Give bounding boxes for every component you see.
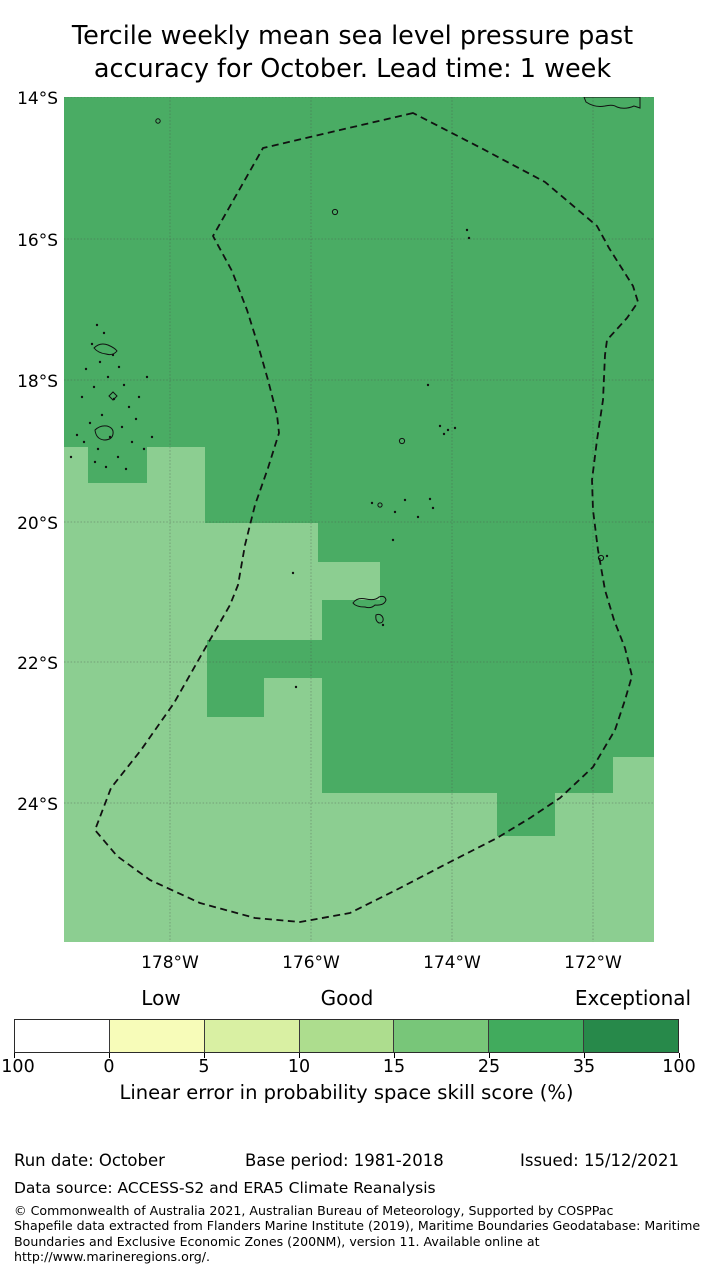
copyright-line: Shapefile data extracted from Flanders M… <box>14 1218 700 1233</box>
skill-map <box>64 97 654 942</box>
colorbar-tick-label: 10 <box>269 1057 329 1077</box>
colorbar-tick-label: 100 <box>649 1057 705 1077</box>
island-dot <box>143 448 145 450</box>
issued-date: Issued: 15/12/2021 <box>520 1151 679 1171</box>
island-dot <box>138 396 140 398</box>
map-light-green-patch <box>64 717 322 942</box>
island-dot <box>89 422 91 424</box>
colorbar-segment <box>583 1020 678 1052</box>
chart-title-line-1: Tercile weekly mean sea level pressure p… <box>0 20 705 53</box>
map-light-green-patch <box>555 793 613 836</box>
island-dot <box>468 237 470 239</box>
colorbar-tick-label: 25 <box>459 1057 519 1077</box>
colorbar-segment <box>488 1020 583 1052</box>
map-light-green-patch <box>64 523 318 562</box>
map-light-green-patch <box>64 678 207 717</box>
lat-tick-label: 22°S <box>0 654 58 674</box>
colorbar <box>14 1019 679 1053</box>
base-period: Base period: 1981-2018 <box>245 1151 444 1171</box>
copyright-line: http://www.marineregions.org/. <box>14 1249 700 1264</box>
lon-tick-label: 172°W <box>548 953 638 973</box>
colorbar-tick-label: 15 <box>364 1057 424 1077</box>
island-dot <box>93 386 95 388</box>
island-dot <box>404 499 406 501</box>
island-dot <box>135 418 137 420</box>
island-dot <box>85 368 87 370</box>
island-dot <box>382 624 384 626</box>
map-light-green-patch <box>64 447 88 483</box>
island-dot <box>97 448 99 450</box>
data-source: Data source: ACCESS-S2 and ERA5 Climate … <box>14 1179 436 1198</box>
island-dot <box>81 396 83 398</box>
lat-tick-label: 24°S <box>0 795 58 815</box>
colorbar-segment <box>299 1020 394 1052</box>
island-dot <box>394 511 396 513</box>
island-dot <box>91 343 93 345</box>
island-dot <box>131 441 133 443</box>
island-dot <box>454 427 456 429</box>
island-dot <box>94 461 96 463</box>
island-dot <box>123 384 125 386</box>
colorbar-segment <box>15 1020 109 1052</box>
island-dot <box>439 425 441 427</box>
colorbar-segment <box>393 1020 488 1052</box>
island-dot <box>121 426 123 428</box>
island-dot <box>292 572 294 574</box>
island-dot <box>118 366 120 368</box>
colorbar-tick-label: 35 <box>554 1057 614 1077</box>
skill-category-exceptional: Exceptional <box>483 986 705 1010</box>
run-date: Run date: October <box>14 1151 165 1171</box>
colorbar-tick-label: 0 <box>79 1057 139 1077</box>
island-dot <box>146 376 148 378</box>
island-dot <box>443 433 445 435</box>
island-dot <box>295 686 297 688</box>
map-light-green-patch <box>64 562 380 600</box>
island-dot <box>76 434 78 436</box>
copyright-line: © Commonwealth of Australia 2021, Austra… <box>14 1203 700 1218</box>
lat-tick-label: 20°S <box>0 514 58 534</box>
chart-title-line-2: accuracy for October. Lead time: 1 week <box>0 53 705 86</box>
island-dot <box>117 456 119 458</box>
island-dot <box>83 441 85 443</box>
island-dot <box>371 502 373 504</box>
island-dot <box>70 456 72 458</box>
island-dot <box>105 466 107 468</box>
island-dot <box>99 361 101 363</box>
lat-tick-label: 18°S <box>0 372 58 392</box>
island-dot <box>447 429 449 431</box>
colorbar-axis-label: Linear error in probability space skill … <box>0 1081 699 1105</box>
copyright-block: © Commonwealth of Australia 2021, Austra… <box>14 1203 700 1265</box>
map-plot-area <box>64 97 654 942</box>
map-light-green-patch <box>147 447 205 483</box>
colorbar-tick-label: 5 <box>174 1057 234 1077</box>
island-dot <box>96 324 98 326</box>
island-dot <box>429 498 431 500</box>
lat-tick-label: 16°S <box>0 231 58 251</box>
island-dot <box>103 332 105 334</box>
map-light-green-patch <box>64 600 322 640</box>
colorbar-segment <box>109 1020 204 1052</box>
island-dot <box>107 376 109 378</box>
colorbar-segment <box>204 1020 299 1052</box>
island-dot <box>125 468 127 470</box>
island-dot <box>101 414 103 416</box>
lon-tick-label: 178°W <box>125 953 215 973</box>
map-light-green-patch <box>64 640 207 678</box>
map-light-green-patch <box>264 678 322 717</box>
island-dot <box>606 555 608 557</box>
map-light-green-patch <box>64 483 205 523</box>
copyright-line: Boundaries and Exclusive Economic Zones … <box>14 1234 700 1249</box>
lon-tick-label: 174°W <box>407 953 497 973</box>
island-dot <box>151 436 153 438</box>
island-dot <box>128 406 130 408</box>
lat-tick-label: 14°S <box>0 89 58 109</box>
island-dot <box>427 384 429 386</box>
map-light-green-patch <box>322 836 654 942</box>
island-dot <box>432 507 434 509</box>
map-light-green-patch <box>322 793 497 836</box>
island-dot <box>417 516 419 518</box>
lon-tick-label: 176°W <box>266 953 356 973</box>
island-dot <box>392 539 394 541</box>
map-light-green-patch <box>613 757 654 836</box>
figure-root: Tercile weekly mean sea level pressure p… <box>0 0 705 1275</box>
skill-category-good: Good <box>197 986 497 1010</box>
colorbar-tick-label: 100 <box>0 1057 48 1077</box>
island-dot <box>466 229 468 231</box>
